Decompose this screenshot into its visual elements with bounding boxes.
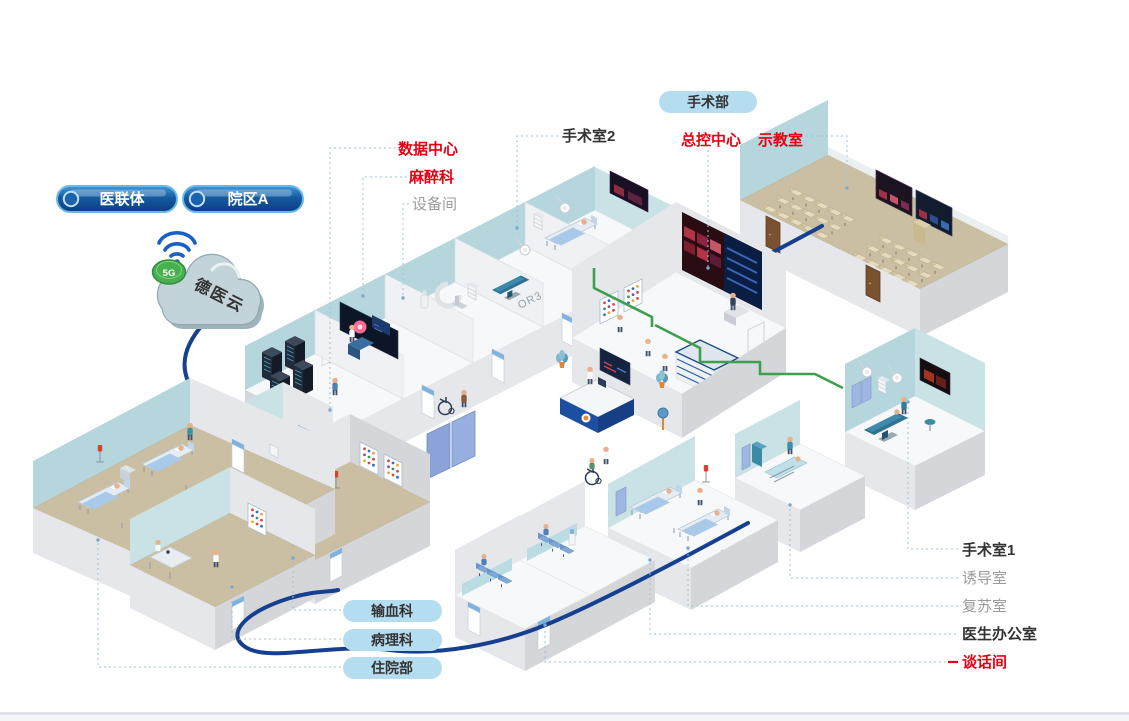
label-talk-room: 谈话间 [962,653,1007,671]
bottom-strip [0,715,1129,721]
hospital-smart-surgery-diagram: OR3 OR2 [0,0,1129,721]
strip-door-2 [422,385,434,419]
inpatient-pill-label: 住院部 [371,660,413,676]
label-data-center: 数据中心 [398,140,458,158]
label-operating-room-1: 手术室1 [962,541,1015,559]
campus-a-label: 院区A [228,190,269,208]
bottom-divider [0,712,1129,715]
surgery-department-pill-label: 手术部 [687,94,729,110]
label-equipment-room: 设备间 [412,196,457,213]
blood-transfusion-pill-label: 输血科 [371,603,413,619]
label-doctor-office: 医生办公室 [962,625,1037,643]
exam-curtain [742,444,750,470]
pathology-pill-label: 病理科 [371,632,413,648]
pill-ring-icon [190,192,204,206]
talk-room-door-2 [538,616,550,650]
talk-room-door-1 [468,602,480,636]
or1-patient-head [894,409,899,414]
label-anesthesiology: 麻醉科 [408,168,454,186]
label-recovery-room: 复苏室 [962,597,1007,615]
medical-consortium-label: 医联体 [99,190,145,208]
label-induction-room: 诱导室 [962,570,1007,587]
waiting-person-1 [481,554,486,565]
label-demo-classroom: 示教室 [758,131,803,149]
bottom-department-pills: 输血科 病理科 住院部 [343,600,442,679]
surgery-department-pill: 手术部 [659,91,757,113]
recovery-door-curtain [616,487,626,516]
ward-door [232,439,244,473]
classroom-door-2 [866,265,880,302]
waiting-person-2 [543,524,548,535]
medical-consortium-pill: 医联体 [57,186,177,212]
or1-building [845,328,985,510]
label-master-control: 总控中心 [681,131,741,149]
medical-robot [421,290,428,308]
strip-door-3 [492,349,504,383]
label-operating-room-2: 手术室2 [562,127,615,145]
patient-head [581,219,586,224]
pill-ring-icon [64,192,78,206]
5g-badge-label: 5G [163,268,176,279]
blood-door [330,548,342,582]
campus-a-pill: 院区A [183,186,303,212]
isometric-scene: OR3 OR2 [0,0,1129,721]
5g-badge: 5G [153,260,186,284]
